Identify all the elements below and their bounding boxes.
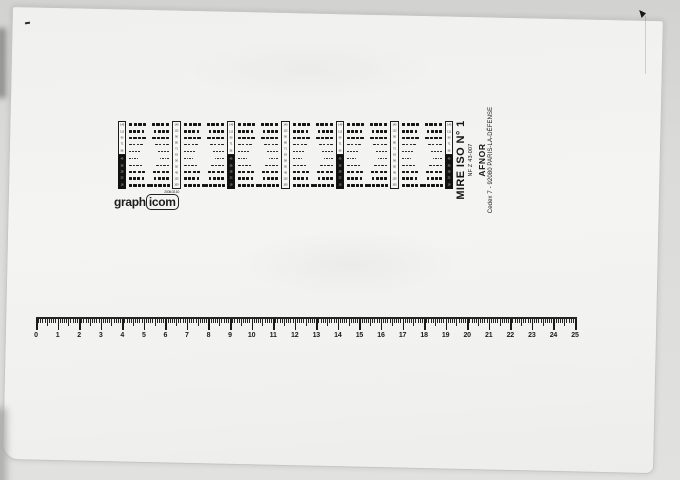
dot-cluster	[238, 171, 254, 173]
scale-bar-value: 90	[392, 135, 396, 139]
pattern-dot	[301, 177, 304, 180]
dot-pattern-row	[237, 155, 279, 161]
dot-cluster	[324, 158, 333, 159]
pattern-dot	[408, 151, 410, 152]
pattern-dot	[316, 137, 319, 139]
pattern-dot	[210, 144, 213, 145]
ruler-tick	[566, 319, 567, 323]
pattern-dot	[193, 184, 196, 187]
ruler-tick	[131, 319, 132, 323]
pattern-dot	[384, 177, 387, 180]
pattern-dot	[356, 137, 359, 139]
pattern-dot	[402, 158, 404, 159]
dot-pattern-row	[183, 128, 225, 134]
ruler-tick	[379, 319, 380, 323]
id-bar-value: 56	[447, 149, 451, 153]
pattern-dot	[316, 123, 319, 126]
pattern-dot	[193, 171, 196, 173]
dot-pattern-row	[237, 142, 279, 148]
pattern-dot	[137, 158, 139, 159]
pattern-dot	[440, 151, 442, 152]
ruler-tick	[508, 319, 509, 323]
pattern-dot	[137, 144, 140, 145]
dot-cluster	[156, 165, 169, 166]
pattern-dot	[402, 171, 405, 173]
ruler-tick	[180, 319, 181, 323]
pattern-dot	[267, 151, 269, 152]
dot-cluster	[184, 151, 195, 152]
pattern-dot	[213, 130, 216, 133]
pattern-dot	[347, 123, 350, 126]
pattern-dot	[247, 171, 250, 173]
pattern-dot	[134, 123, 137, 126]
pattern-dot	[166, 177, 169, 180]
ruler-tick	[573, 319, 574, 323]
pattern-dot	[267, 130, 270, 133]
ruler-tick	[64, 319, 65, 323]
dot-pattern-row	[183, 182, 225, 188]
dot-cluster	[184, 130, 199, 133]
ruler-tick	[346, 319, 347, 323]
dot-pattern-row	[346, 162, 388, 168]
id-bar-value: 140	[447, 123, 451, 127]
pattern-dot	[347, 130, 350, 133]
pattern-dot	[435, 171, 438, 173]
scale-bar-value: 50	[392, 165, 396, 169]
pattern-dot	[352, 158, 354, 159]
dot-cluster	[238, 165, 251, 166]
ruler-tick	[575, 319, 577, 330]
pattern-dot	[373, 144, 376, 145]
dot-cluster	[184, 137, 201, 139]
pattern-id-bar: 1401129071564536282218	[118, 121, 126, 189]
pattern-dot	[251, 130, 254, 133]
pattern-dot	[132, 158, 134, 159]
dot-cluster	[263, 130, 278, 133]
pattern-dot	[436, 165, 439, 166]
ruler-tick	[405, 319, 406, 323]
id-bar-value: 90	[447, 136, 451, 140]
ruler-tick	[265, 319, 266, 323]
pattern-id-bar: 1401129071564536282218	[445, 121, 453, 189]
id-bar-top: 140112907156	[445, 121, 453, 155]
pattern-dot	[376, 130, 379, 133]
pattern-dot	[137, 177, 140, 180]
ruler-tick	[211, 319, 212, 323]
dot-cluster	[129, 137, 146, 139]
dot-cluster	[293, 165, 306, 166]
dot-cluster	[318, 177, 333, 180]
ruler-tick	[200, 319, 201, 323]
ruler-tick	[500, 319, 501, 326]
ruler-tick	[422, 319, 423, 323]
dot-cluster	[265, 165, 278, 166]
ruler-tick	[299, 319, 300, 323]
ruler-tick	[66, 319, 67, 323]
pattern-dot	[326, 130, 329, 133]
logo-text-boxed: icom2006.02.10	[146, 194, 179, 210]
dot-cluster	[402, 151, 413, 152]
pattern-dot	[293, 158, 295, 159]
pattern-dot	[330, 130, 333, 133]
ruler-tick	[368, 319, 369, 323]
ruler-tick	[396, 319, 397, 323]
pattern-dot	[368, 184, 371, 187]
pattern-dot	[293, 171, 296, 173]
dot-cluster	[370, 123, 387, 126]
ruler-tick	[478, 319, 479, 326]
pattern-dot	[265, 165, 268, 166]
pattern-dot	[188, 165, 191, 166]
ruler-tick	[155, 319, 156, 326]
pattern-dot	[152, 123, 155, 126]
dot-cluster	[428, 144, 442, 145]
pattern-dot	[267, 177, 270, 180]
pattern-dot	[215, 158, 217, 159]
pattern-dot	[263, 130, 266, 133]
pattern-dot	[271, 171, 274, 173]
pattern-dot	[440, 184, 443, 187]
pattern-dot	[360, 171, 363, 173]
pattern-dot	[402, 184, 405, 187]
pattern-dot	[300, 165, 303, 166]
ruler-tick	[196, 319, 197, 323]
pattern-dot	[221, 123, 224, 126]
ruler-tick	[269, 319, 270, 323]
ruler-tick	[224, 319, 225, 323]
pattern-dot	[158, 130, 161, 133]
pattern-dot	[426, 171, 429, 173]
pattern-dot	[213, 177, 216, 180]
pattern-dot	[381, 165, 384, 166]
pattern-dot	[326, 177, 329, 180]
pattern-dot	[324, 158, 326, 159]
ruler-tick	[271, 319, 272, 323]
pattern-dot	[347, 144, 350, 145]
pattern-dot	[385, 151, 387, 152]
ruler-tick	[137, 319, 138, 323]
dot-cluster	[314, 184, 335, 187]
pattern-dot	[439, 137, 442, 139]
pattern-dot	[385, 165, 388, 166]
pattern-dot	[384, 144, 387, 145]
dot-cluster	[184, 165, 197, 166]
ruler-tick	[549, 319, 550, 323]
dot-cluster	[347, 165, 360, 166]
ruler-tick	[571, 319, 572, 323]
ruler-label: 23	[526, 332, 538, 339]
dot-cluster	[238, 184, 259, 187]
pattern-dot	[162, 158, 164, 159]
ruler-tick	[374, 319, 375, 323]
id-bar-value: 112	[338, 130, 342, 134]
pattern-dot	[140, 144, 143, 145]
pattern-dot	[129, 184, 132, 187]
pattern-dot	[301, 158, 303, 159]
pattern-dot	[304, 144, 307, 145]
ruler-tick	[536, 319, 537, 323]
pattern-dot	[197, 137, 200, 139]
pattern-dot	[347, 171, 350, 173]
pattern-dot	[133, 137, 136, 139]
pattern-dot	[192, 130, 195, 133]
dot-cluster	[264, 144, 278, 145]
ruler-tick	[409, 319, 410, 323]
pattern-dot	[371, 171, 374, 173]
dot-cluster	[293, 177, 308, 180]
ruler-tick	[215, 319, 216, 323]
ruler-tick	[377, 319, 378, 323]
ruler-tick	[105, 319, 106, 323]
pattern-dot	[197, 171, 200, 173]
pattern-dot	[161, 123, 164, 126]
ruler-tick	[331, 319, 332, 323]
scale-bar-value: 71	[174, 147, 178, 151]
dot-cluster	[259, 184, 280, 187]
pattern-dot	[306, 137, 309, 139]
dot-cluster	[208, 171, 224, 173]
pattern-dot	[355, 130, 358, 133]
ruler-tick	[152, 319, 153, 323]
pattern-dot	[271, 158, 273, 159]
scale-bar-value: 140	[283, 123, 287, 127]
pattern-dot	[275, 144, 278, 145]
dot-pattern-row	[292, 155, 334, 161]
ruler-tick	[103, 319, 104, 323]
id-bar-value: 56	[229, 149, 233, 153]
pattern-dot	[327, 144, 330, 145]
dot-cluster	[347, 130, 362, 133]
dot-cluster	[427, 177, 442, 180]
pattern-dot	[331, 151, 333, 152]
pattern-scale-bar: 14011290807163565045125100	[281, 121, 290, 189]
pattern-dot	[155, 144, 158, 145]
pattern-dot	[212, 171, 215, 173]
ruler-tick	[133, 319, 134, 326]
pattern-dot	[167, 184, 170, 187]
dot-cluster	[374, 165, 387, 166]
pattern-dot	[440, 158, 442, 159]
ruler-tick	[562, 319, 563, 323]
ruler-tick	[564, 319, 565, 326]
dot-cluster	[150, 184, 171, 187]
dot-cluster	[261, 123, 278, 126]
ruler-tick	[306, 319, 307, 326]
dot-cluster	[210, 144, 224, 145]
pattern-dot	[221, 144, 224, 145]
pattern-dot	[221, 130, 224, 133]
dot-cluster	[238, 151, 249, 152]
ruler-tick	[372, 319, 373, 323]
ruler-tick	[241, 319, 242, 326]
pattern-dot	[323, 144, 326, 145]
pattern-dot	[380, 177, 383, 180]
id-bar-bottom: 4536282218	[336, 155, 344, 189]
scale-bar-value: 125	[283, 177, 287, 181]
pattern-dot	[435, 158, 437, 159]
scale-bar-value: 56	[174, 159, 178, 163]
ruler-tick	[62, 319, 63, 323]
ruler-tick	[349, 319, 350, 326]
id-bar-value: 45	[120, 157, 124, 161]
ruler-label: 21	[483, 332, 495, 339]
ruler-tick	[90, 319, 91, 326]
pattern-dot	[425, 137, 428, 139]
pattern-dot	[222, 158, 224, 159]
pattern-dot	[197, 184, 200, 187]
pattern-dot	[347, 177, 350, 180]
pattern-dot	[411, 123, 414, 126]
scale-bar-value: 56	[392, 159, 396, 163]
pattern-dot	[299, 151, 301, 152]
pattern-dot	[138, 184, 141, 187]
dot-cluster	[160, 158, 169, 159]
dot-pattern-row	[237, 122, 279, 128]
id-bar-value: 71	[229, 142, 233, 146]
pattern-dot	[432, 144, 435, 145]
scale-bar-value: 125	[174, 177, 178, 181]
pattern-dot	[425, 123, 428, 126]
pattern-dot	[136, 165, 139, 166]
dot-cluster	[372, 130, 387, 133]
pattern-dot	[415, 130, 418, 133]
dot-cluster	[347, 177, 362, 180]
pattern-dot	[218, 165, 221, 166]
pattern-dot	[184, 144, 187, 145]
dot-cluster	[184, 144, 198, 145]
ruler-tick	[357, 319, 358, 323]
pattern-dot	[193, 151, 195, 152]
ruler-tick	[353, 319, 354, 323]
ruler-tick	[234, 319, 235, 323]
pattern-dot	[381, 144, 384, 145]
pattern-dot	[322, 130, 325, 133]
pattern-dot	[434, 151, 436, 152]
dot-cluster	[238, 177, 253, 180]
pattern-dot	[376, 151, 378, 152]
dot-pattern-row	[183, 162, 225, 168]
pattern-dot	[129, 165, 132, 166]
pattern-dot	[415, 184, 418, 187]
ruler-tick	[55, 319, 56, 323]
ruler: 0123456789101112131415161718192021222324…	[36, 317, 577, 345]
dot-cluster	[184, 123, 201, 126]
dot-cluster	[318, 130, 333, 133]
scale-bar-value: 45	[392, 171, 396, 175]
pattern-dot	[270, 151, 272, 152]
ruler-tick	[99, 319, 100, 323]
pattern-dot	[327, 184, 330, 187]
ruler-label: 17	[397, 332, 409, 339]
pattern-dot	[264, 144, 267, 145]
ruler-tick	[243, 319, 244, 323]
id-bar-value: 90	[229, 136, 233, 140]
pattern-dot	[430, 171, 433, 173]
dot-cluster	[293, 151, 304, 152]
pattern-dot	[440, 165, 443, 166]
pattern-dot	[142, 184, 145, 187]
dot-cluster	[129, 171, 145, 173]
pattern-dot	[218, 184, 221, 187]
ruler-tick	[390, 319, 391, 323]
pattern-dot	[370, 137, 373, 139]
pattern-dot	[293, 177, 296, 180]
pattern-dot	[439, 130, 442, 133]
dot-pattern-row	[237, 128, 279, 134]
ruler-tick	[504, 319, 505, 323]
ruler-tick	[497, 319, 498, 323]
pattern-dot	[410, 158, 412, 159]
dot-pattern-row	[183, 169, 225, 175]
id-bar-value: 140	[120, 123, 124, 127]
pattern-dot	[272, 184, 275, 187]
pattern-dot	[157, 137, 160, 139]
dot-pattern-row	[128, 176, 170, 182]
ruler-tick	[308, 319, 309, 323]
dot-cluster	[402, 158, 411, 159]
pattern-dot	[377, 144, 380, 145]
pattern-dot	[429, 165, 432, 166]
pattern-dot	[184, 123, 187, 126]
scale-bar-value: 56	[283, 159, 287, 163]
pattern-dot	[129, 158, 131, 159]
pattern-dot	[275, 137, 278, 139]
pattern-dot	[138, 171, 141, 173]
pattern-dot	[325, 151, 327, 152]
ruler-tick	[463, 319, 464, 323]
ruler-label: 13	[310, 332, 322, 339]
pattern-dot	[347, 184, 350, 187]
scale-bar-value: 140	[174, 123, 178, 127]
dot-pattern-row	[128, 122, 170, 128]
ruler-tick	[415, 319, 416, 323]
pattern-dot	[376, 184, 379, 187]
pattern-dot	[411, 184, 414, 187]
pattern-dot	[384, 123, 387, 126]
pattern-dot	[318, 177, 321, 180]
ruler-tick	[502, 319, 503, 323]
dot-pattern-row	[346, 122, 388, 128]
dot-pattern-block	[401, 121, 443, 189]
dot-pattern-block	[128, 121, 170, 189]
pattern-dot	[402, 177, 405, 180]
scale-bar-value: 63	[174, 153, 178, 157]
id-bar-value: 22	[447, 176, 451, 180]
pattern-dot	[251, 177, 254, 180]
dot-pattern-row	[401, 135, 443, 141]
pattern-dot	[360, 137, 363, 139]
pattern-dot	[238, 123, 241, 126]
pattern-dot	[135, 151, 137, 152]
id-bar-value: 45	[447, 157, 451, 161]
ruler-tick	[525, 319, 526, 323]
pattern-dot	[370, 123, 373, 126]
ruler-tick	[260, 319, 261, 323]
ruler-tick	[127, 319, 128, 323]
ruler-tick	[398, 319, 399, 323]
pattern-dot	[351, 137, 354, 139]
ruler-tick	[461, 319, 462, 323]
pattern-dot	[209, 184, 212, 187]
pattern-dot	[375, 171, 378, 173]
scale-bar-value: 71	[283, 147, 287, 151]
pattern-dot	[142, 171, 145, 173]
ruler-tick	[170, 319, 171, 323]
pattern-dot	[416, 123, 419, 126]
pattern-dot	[320, 165, 323, 166]
pattern-dot	[372, 184, 375, 187]
test-strip: 1401129071564536282218140112908071635650…	[118, 121, 453, 189]
